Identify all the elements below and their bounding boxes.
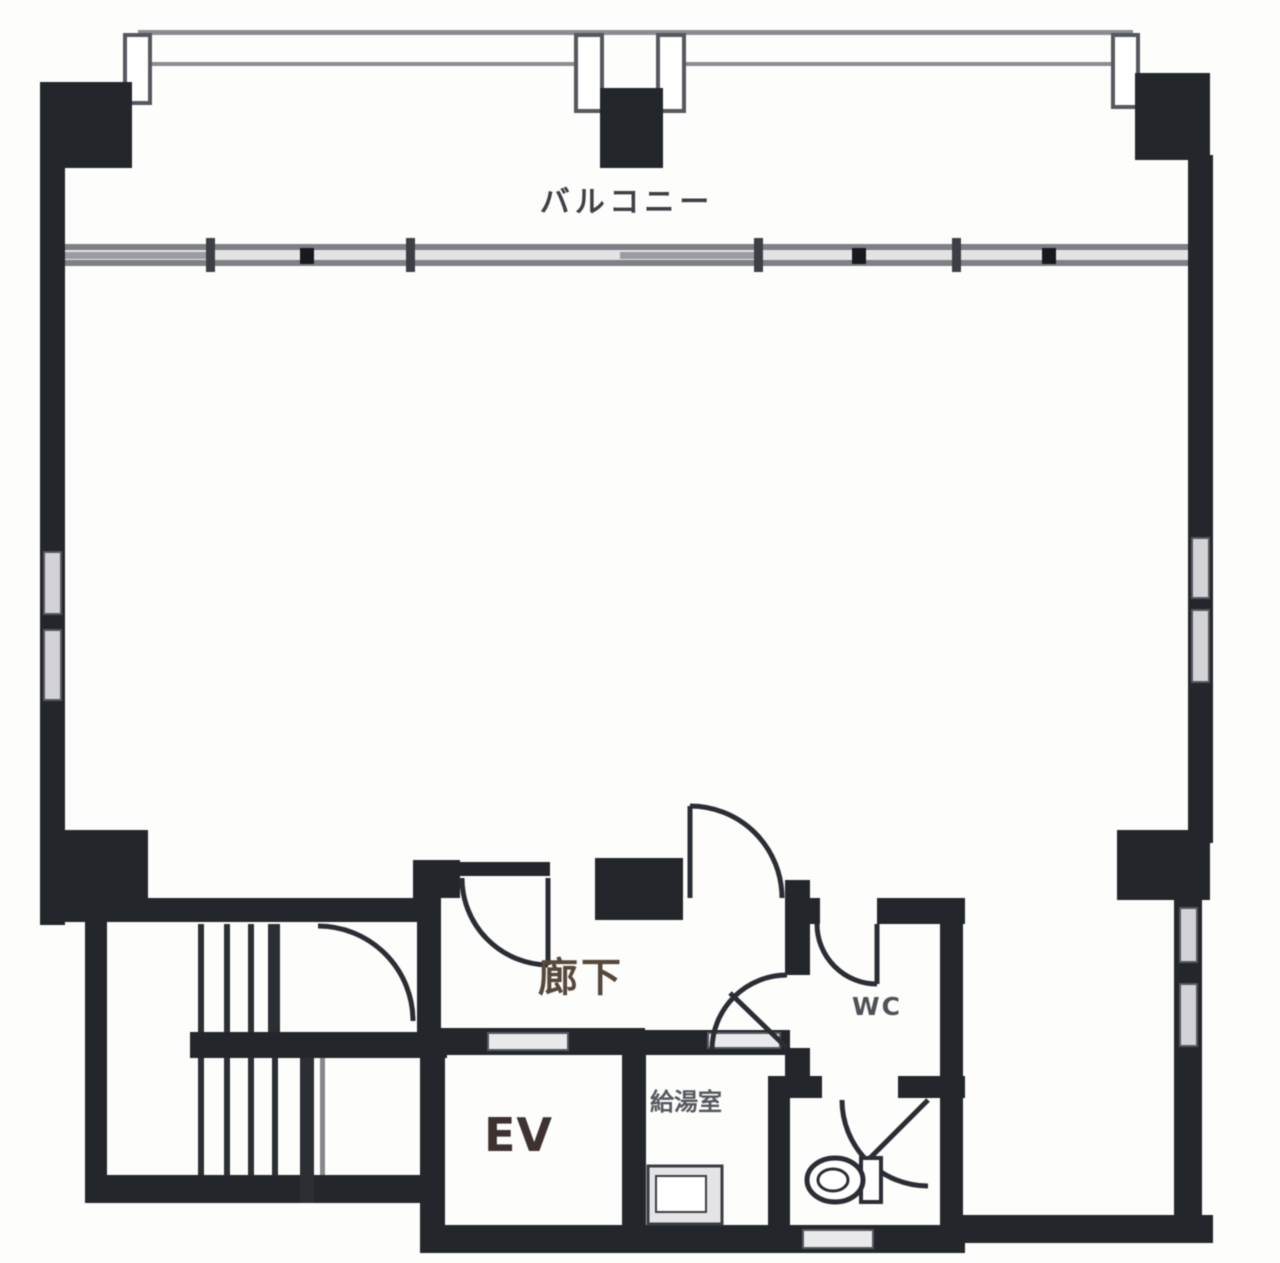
railing-post [1113, 35, 1138, 107]
balcony-label: バルコニー [512, 188, 742, 218]
window-band [63, 238, 1189, 272]
sink-icon [656, 1176, 706, 1212]
stairs [198, 924, 325, 1203]
fixtures [648, 1158, 881, 1224]
walls [40, 155, 1213, 1253]
bathroom-door-leaf [868, 1100, 928, 1160]
corridor-label: 廊下 [538, 958, 624, 998]
kitchenette-label: 給湯室 [650, 1090, 722, 1114]
entrance-door-arc [690, 806, 782, 898]
wc-door-arc [817, 924, 877, 984]
corridor-door-arc [462, 878, 548, 965]
floor-plan: バルコニー 廊下 WC EV 給湯室 [0, 0, 1280, 1263]
stairwell-door-arc [318, 926, 413, 1021]
railing-post [576, 35, 602, 111]
elevator-label: EV [484, 1112, 553, 1158]
wc-label: WC [852, 994, 902, 1019]
